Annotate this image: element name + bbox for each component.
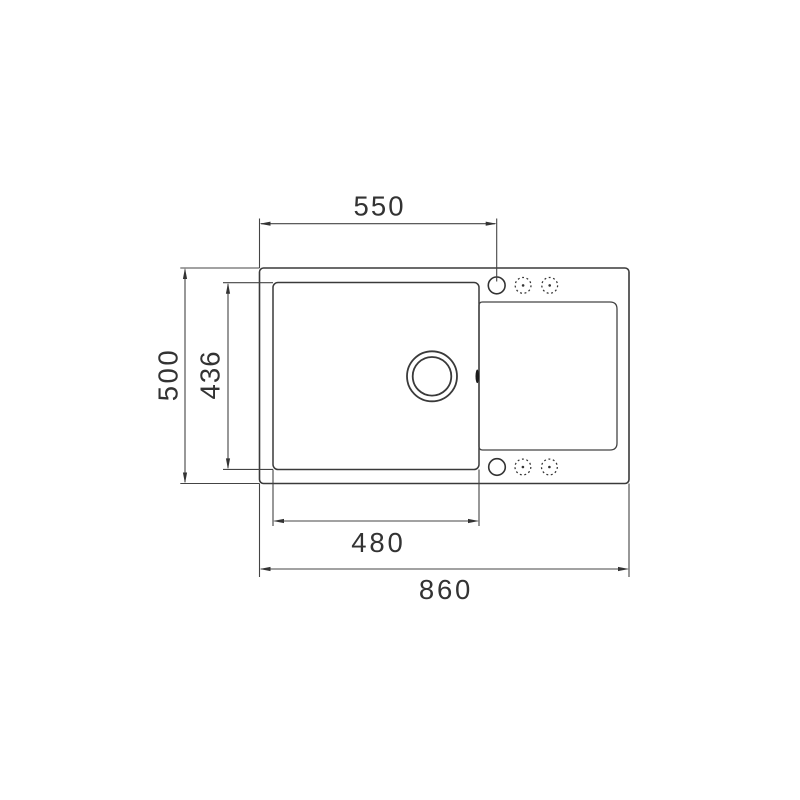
svg-text:860: 860 [419,574,471,605]
svg-text:480: 480 [351,527,403,558]
svg-text:436: 436 [195,352,226,400]
svg-text:550: 550 [354,191,404,222]
svg-text:500: 500 [153,350,184,401]
